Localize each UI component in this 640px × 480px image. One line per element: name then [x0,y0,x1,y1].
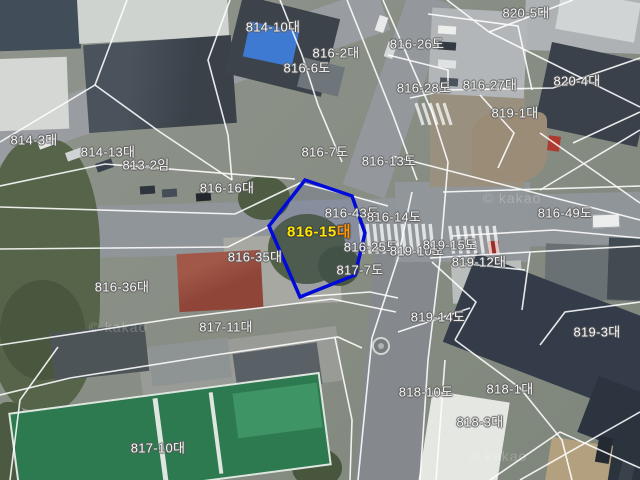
building-white-roof [418,390,509,480]
tree-cluster [238,176,290,220]
satellite-imagery [0,0,640,480]
building-roof [50,323,149,381]
building-roof [0,0,81,52]
road-intersection [395,182,530,262]
car [592,214,620,229]
car [438,59,457,68]
tree-cluster [318,246,360,286]
building-roof [0,57,69,132]
map-canvas[interactable]: 814-10대816-2대816-6도816-26도820-5대816-28도8… [0,0,640,480]
building-roof [83,35,237,133]
car [95,158,114,172]
car-red [488,241,500,255]
building-roof [607,237,640,300]
building-roof [534,42,640,147]
car [440,77,459,86]
car [196,192,212,201]
car-red [547,135,561,152]
car [140,185,156,194]
car [438,41,457,50]
building-red-roof [177,250,264,312]
car [438,25,457,34]
car [162,188,178,197]
building-roof [472,112,547,182]
